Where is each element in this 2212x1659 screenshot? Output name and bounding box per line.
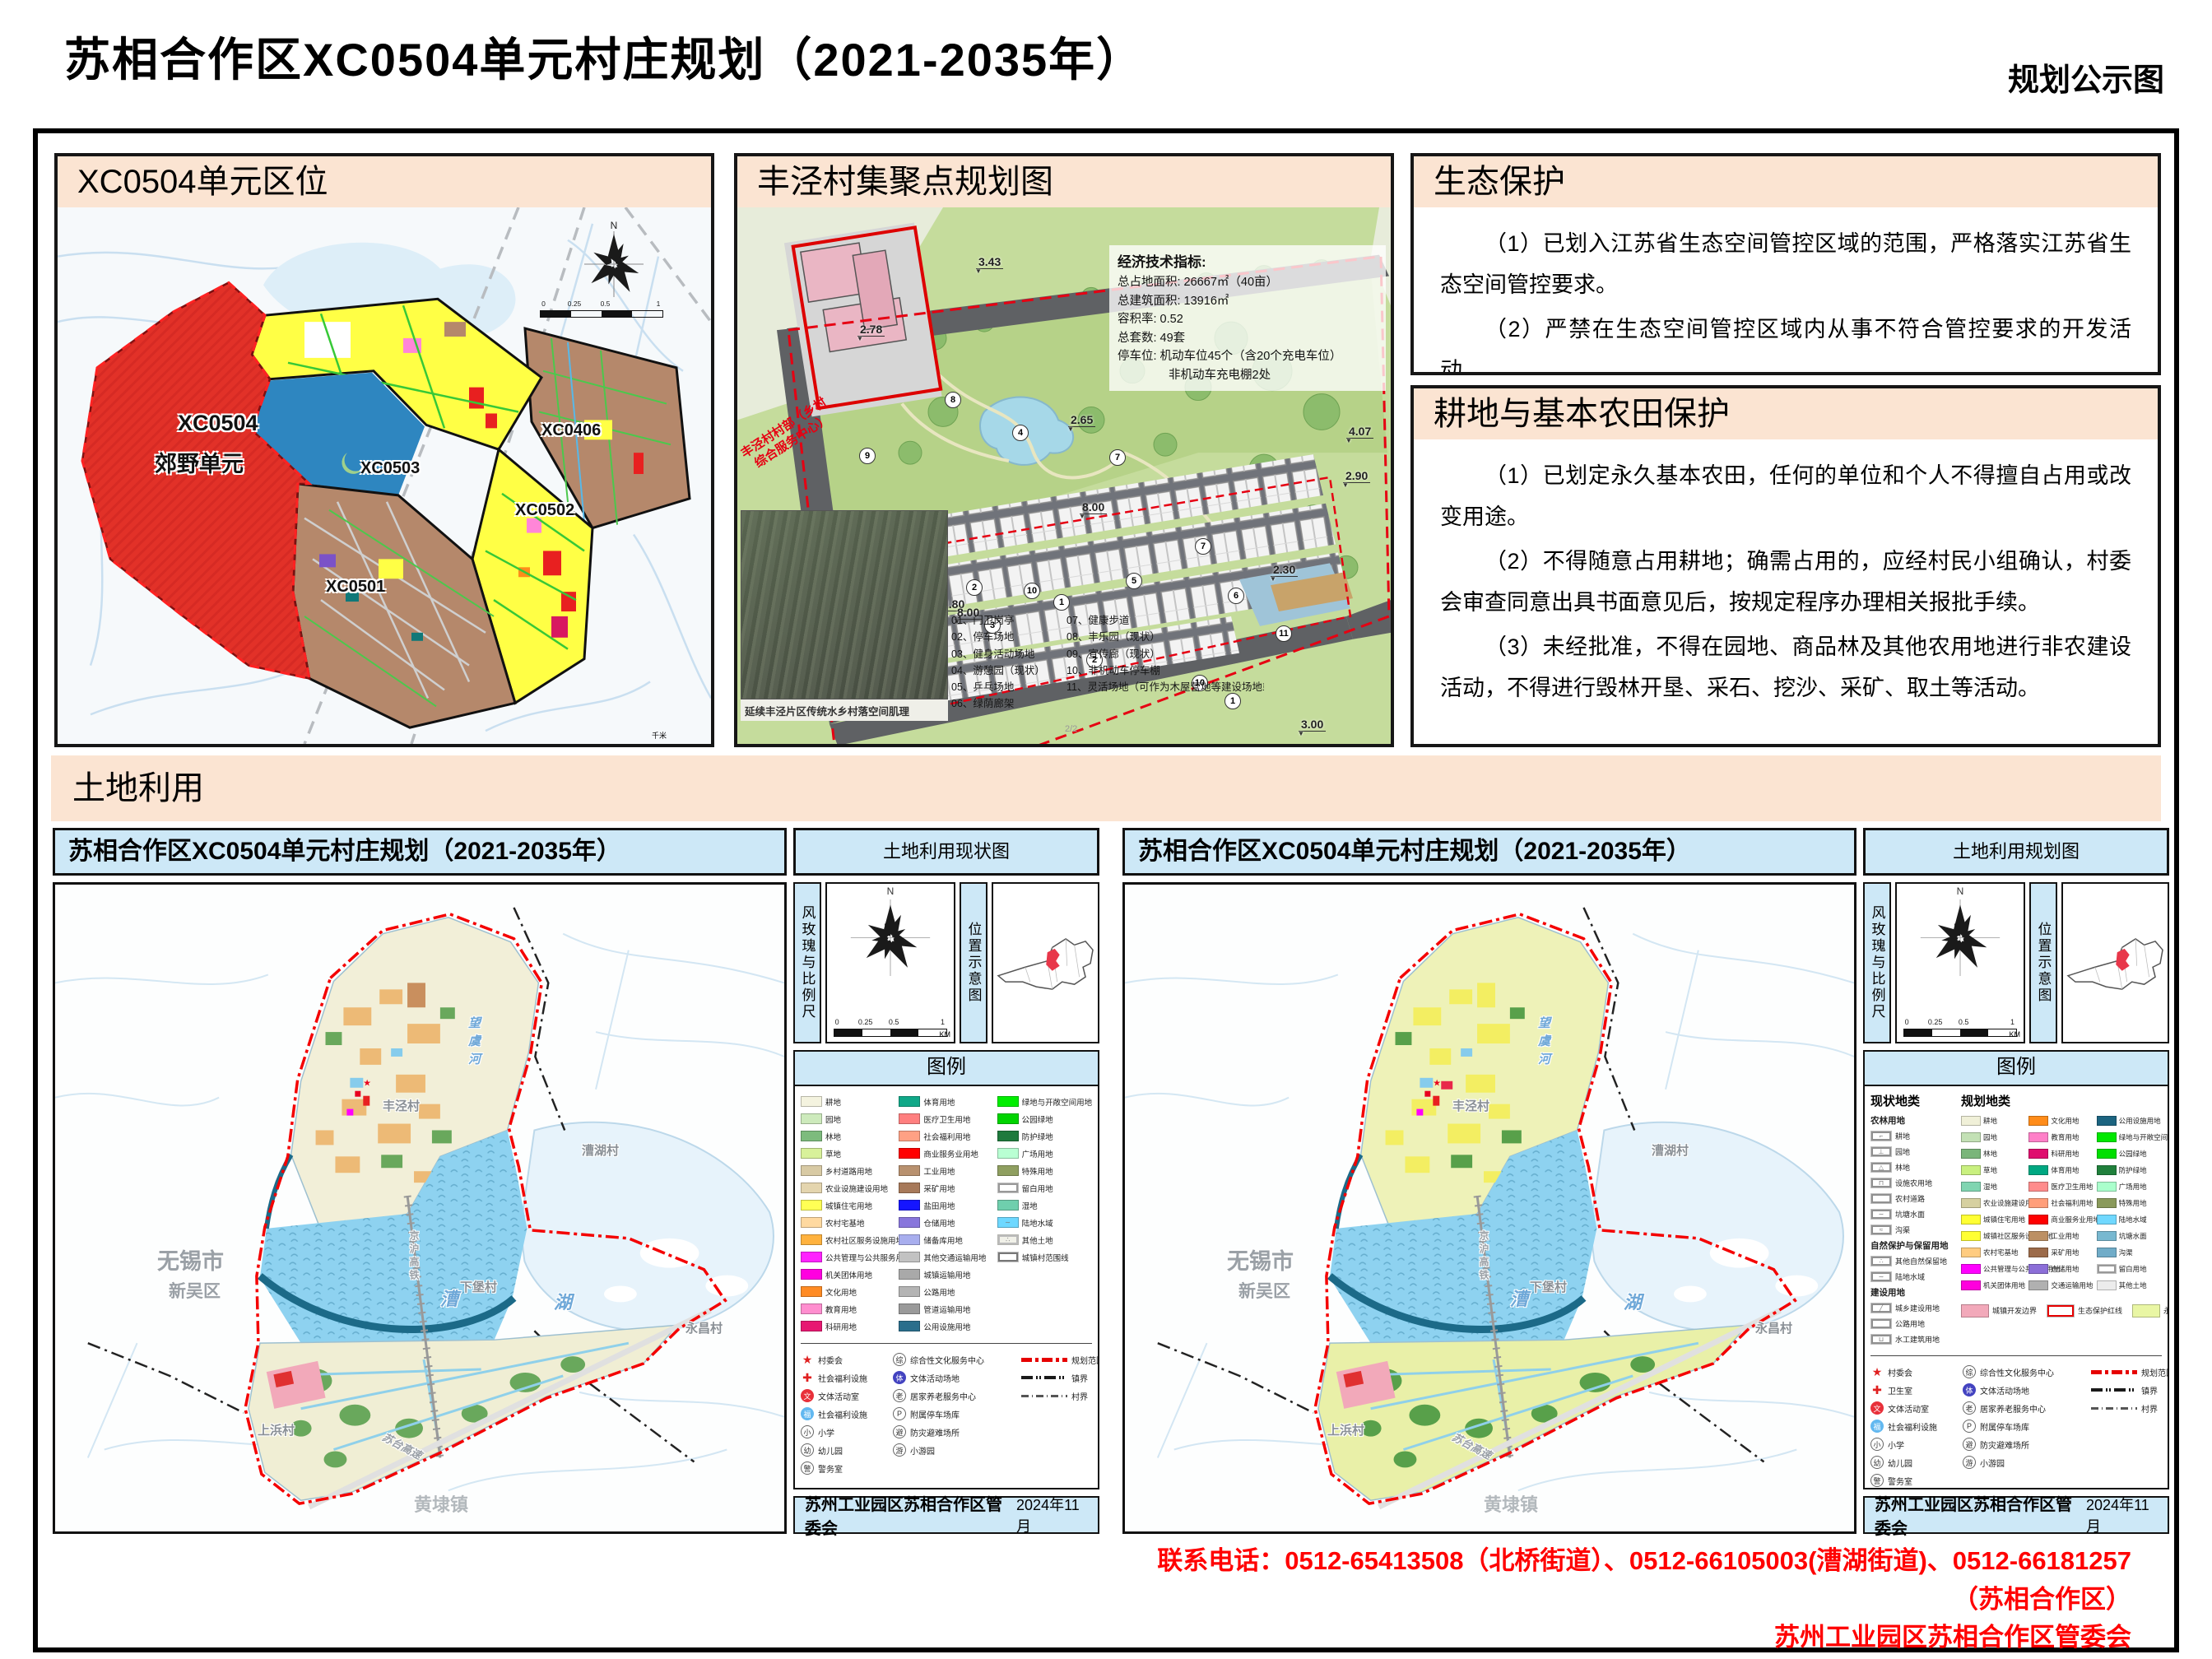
scale-tick: 0 [1905, 1018, 1909, 1026]
legend-box: 图例 耕地园地林地草地乡村道路用地农业设施建设用地城镇住宅用地农村宅基地农村社区… [793, 1050, 1099, 1489]
north-arrow-icon: N [581, 219, 647, 298]
farmland-paragraph: （1）已划定永久基本农田，任何的单位和个人不得擅自占用或改变用途。 [1440, 456, 2131, 538]
legend-item: 科研用地 [801, 1317, 895, 1335]
map-place-label: 黄埭镇 [414, 1490, 468, 1517]
legend-item: 防护绿地 [997, 1127, 1092, 1145]
legend-item: 城镇村范围线 [997, 1248, 1092, 1266]
scale-tick: 0.25 [858, 1018, 873, 1026]
scale-tick: 1 [657, 300, 661, 308]
legend-item: 广场用地 [2097, 1178, 2162, 1195]
legend-item: 城镇开发边界 [1961, 1302, 2037, 1319]
legend-item: 公用设施用地 [899, 1317, 993, 1335]
scale-tick: 0 [541, 300, 546, 308]
facility-number-badge: 1 [1053, 594, 1070, 611]
windrose-icon [827, 895, 954, 984]
special-boundaries: 城镇开发边界生态保护红线永久基本农田 [1961, 1302, 2162, 1319]
symbol-legend-item: 老居家养老服务中心 [893, 1387, 1015, 1405]
legend-item: ╱城乡建设用地 [1870, 1300, 1956, 1316]
map-place-label: 京沪高铁 [1477, 1230, 1491, 1283]
symbol-legend-item: 游小游园 [893, 1441, 1015, 1459]
contact-org: 苏州工业园区苏相合作区管委会 [1108, 1619, 2131, 1657]
map-place-label: 漕湖村 [582, 1141, 619, 1159]
eco-protection-header: 生态保护 [1414, 156, 2158, 207]
scale-tick: 0.25 [1928, 1018, 1943, 1026]
legend-item: 体育用地 [899, 1093, 993, 1110]
symbol-legend-item: 避防灾避难场所 [893, 1423, 1015, 1441]
symbol-legend-item: 综综合性文化服务中心 [893, 1350, 1015, 1369]
planned-col-1: 耕地园地林地草地湿地农业设施建设用地城镇住宅用地城镇社区服务设施用地农村宅基地公… [1961, 1113, 2026, 1294]
legend-item: 防护绿地 [2097, 1162, 2162, 1178]
landuse-section-header: 土地利用 [51, 755, 2161, 821]
legend-item: 管道运输用地 [899, 1300, 993, 1317]
map-place-labels: 丰泾村漕湖村无锡市新吴区下堡村上浜村永昌村黄埭镇漕湖望虞河京沪高铁苏台高速 [55, 885, 784, 1531]
symbol-legend-col2: 综综合性文化服务中心体文体活动场地老居家养老服务中心P附属停车场库避防灾避难场所… [1963, 1363, 2084, 1489]
map-place-label: 永昌村 [1755, 1319, 1792, 1336]
legend-item: 文化用地 [801, 1283, 895, 1300]
map-place-label: 无锡市 [1227, 1243, 1294, 1276]
facility-list: 01、门卫岗亭02、停车场地03、健身活动场地04、游憩园（现状）05、乒乓场地… [951, 612, 1264, 713]
legend-item: 坑塘水面 [2097, 1228, 2162, 1244]
facility-list-item: 11、灵活场地（可作为木屋营地等建设场地或临时停车场地） [1066, 679, 1264, 695]
legend-item: 公园绿地 [2097, 1145, 2162, 1162]
contact-info: 联系电话：0512-65413508（北桥街道）、0512-66105003(漕… [1108, 1542, 2169, 1657]
legend-item: 社会福利用地 [899, 1127, 993, 1145]
facility-list-item: 04、游憩园（现状） [951, 662, 1057, 679]
symbol-legend-item: 警警务室 [801, 1459, 886, 1477]
facility-list-item: 01、门卫岗亭 [951, 612, 1057, 629]
contact-phones: 联系电话：0512-65413508（北桥街道）、0512-66105003(漕… [1108, 1542, 2131, 1619]
facility-number-badge: 6 [1228, 588, 1244, 604]
legend-item: 留白用地 [2097, 1261, 2162, 1277]
planned-types-title: 规划地类 [1961, 1093, 2162, 1113]
windrose-label: 风玫瑰与比例尺 [1863, 882, 1891, 1043]
map-place-label: 下堡村 [460, 1278, 497, 1295]
map-place-labels: 丰泾村漕湖村无锡市新吴区下堡村上浜村永昌村黄埭镇漕湖望虞河京沪高铁苏台高速 [1125, 885, 1854, 1531]
legend-item: 盐田用地 [899, 1197, 993, 1214]
facility-number-badge: 11 [1276, 625, 1292, 642]
farmland-paragraph: （2）不得随意占用耕地；确需占用的，应经村民小组确认，村委会审查同意出具书面意见… [1440, 541, 2131, 624]
page-title: 苏相合作区XC0504单元村庄规划（2021-2035年） [64, 23, 1144, 90]
map-place-label: 苏台高速 [380, 1429, 425, 1462]
legend-item: 陆地水域 [2097, 1211, 2162, 1228]
farmland-paragraph: （3）未经批准，不得在园地、商品林及其他农用地进行非农建设活动，不得进行毁林开垦… [1440, 627, 2131, 709]
windrose-label: 风玫瑰与比例尺 [793, 882, 821, 1043]
legend-item: ⊔水工建筑用地 [1870, 1331, 1956, 1347]
legend-item: 文化用地 [2028, 1113, 2093, 1129]
planned-col-3: 公用设施用地绿地与开敞空间用地公园绿地防护绿地广场用地特殊用地陆地水域坑塘水面沟… [2097, 1113, 2162, 1294]
legend-item: ∴其他自然保留地 [1870, 1253, 1956, 1269]
facility-list-item: 06、绿荫廊架 [951, 695, 1057, 712]
map-place-label: 湖 [1624, 1288, 1642, 1314]
scale-tick: 0.5 [889, 1018, 899, 1026]
unit-location-header: XC0504单元区位 [58, 156, 711, 207]
sheet-title: 苏相合作区XC0504单元村庄规划（2021-2035年） [1122, 828, 1856, 876]
scale-bar: 00.250.51 KM [834, 1018, 947, 1037]
legend-item: ∼陆地水域 [1870, 1269, 1956, 1285]
map-place-label: 新吴区 [169, 1278, 221, 1303]
symbol-legend-item: 体文体活动场地 [893, 1369, 1015, 1387]
facility-list-item: 07、健康步道 [1066, 612, 1264, 629]
map-place-label: 新吴区 [1238, 1278, 1290, 1303]
legend-item: 仓储用地 [2028, 1261, 2093, 1277]
legend-item: 机关团体用地 [801, 1266, 895, 1283]
legend-item: ⌐耕地 [1870, 1128, 1956, 1144]
map-place-label: 漕 [440, 1285, 458, 1311]
eco-paragraph: （2）严禁在生态空间管控区域内从事不符合管控要求的开发活动。 [1440, 309, 2131, 372]
facility-list-item: 10、非机动车停车棚 [1066, 662, 1264, 679]
facility-number-badge: 7 [1109, 449, 1126, 466]
legend-title: 图例 [795, 1052, 1098, 1086]
legend-item: 湿地 [997, 1197, 1092, 1214]
legend-item: 教育用地 [801, 1300, 895, 1317]
scale-tick: 0 [835, 1018, 839, 1026]
legend-item: 留白用地 [997, 1179, 1092, 1197]
legend-item: 沟渠 [2097, 1244, 2162, 1261]
legend-item: 绿地与开敞空间用地 [997, 1093, 1092, 1110]
legend-item: 工业用地 [899, 1162, 993, 1179]
symbol-legend-item: 老居家养老服务中心 [1963, 1399, 2084, 1417]
symbol-legend-item: 福社会福利设施 [1870, 1417, 1956, 1435]
eco-protection-panel: 生态保护 （1）已划入江苏省生态空间管控区域的范围，严格落实江苏省生态空间管控要… [1410, 153, 2161, 375]
legend-item: 林地 [801, 1127, 895, 1145]
legend-item: 采矿用地 [899, 1179, 993, 1197]
legend-item: 农业设施建设用地 [801, 1179, 895, 1197]
legend-item: 绿地与开敞空间用地 [2097, 1129, 2162, 1145]
symbol-legend-item: P附属停车场库 [893, 1405, 1015, 1423]
legend-item: 城镇社区服务设施用地 [1961, 1228, 2026, 1244]
facility-number-badge: 9 [859, 448, 876, 464]
location-minimap [2061, 882, 2169, 1043]
symbol-legend-item: 体文体活动场地 [1963, 1381, 2084, 1399]
legend-item: 其他交通运输用地 [899, 1248, 993, 1266]
legend-item: 农村道路 [1870, 1191, 1956, 1206]
legend-item: 农业设施建设用地 [1961, 1195, 2026, 1211]
facility-number-badge: 5 [1126, 573, 1142, 589]
legend-item: ≈沟渠 [1870, 1222, 1956, 1238]
sheet-footer: 苏州工业园区苏相合作区管委会 2024年11月 [793, 1496, 1099, 1534]
facility-number-badge: 10 [1024, 583, 1040, 599]
legend-item: 湿地 [1961, 1178, 2026, 1195]
legend-item: ∴其他土地 [997, 1231, 1092, 1248]
legend-item: 草地 [1961, 1162, 2026, 1178]
unit-label: 郊野单元 [155, 446, 244, 478]
page-marker: 2/2 [1065, 724, 1077, 734]
unit-label: XC0501 [326, 578, 385, 597]
boundary-legend-item: 镇界 [2091, 1381, 2162, 1399]
symbol-legend-item: 游小游园 [1963, 1453, 2084, 1471]
symbol-legend-item: 幼幼儿园 [801, 1441, 886, 1459]
legend-item: 草地 [801, 1145, 895, 1162]
legend-item: 其他土地 [2097, 1277, 2162, 1294]
boundary-legend-item: 村界 [2091, 1399, 2162, 1417]
legend-item: 交通运输用地 [2028, 1277, 2093, 1294]
map-place-label: 望虞河 [1535, 1016, 1552, 1071]
current-types-title: 现状地类 [1870, 1093, 1956, 1113]
scale-tick: 0.5 [1959, 1018, 1969, 1026]
unit-label: XC0503 [360, 459, 420, 478]
symbol-legend-item: 小小学 [801, 1423, 886, 1441]
legend-item: 永久基本农田 [2132, 1302, 2168, 1319]
legend-item: ∼坑塘水面 [1870, 1206, 1956, 1222]
legend-item: 城镇运输用地 [899, 1266, 993, 1283]
sheet-title: 苏相合作区XC0504单元村庄规划（2021-2035年） [53, 828, 787, 876]
cluster-plan-header: 丰泾村集聚点规划图 [737, 156, 1391, 207]
footer-date: 2024年11月 [1016, 1494, 1088, 1536]
legend-item: 体育用地 [2028, 1162, 2093, 1178]
legend-item: 乡村道路用地 [801, 1162, 895, 1179]
symbol-legend-col1: ★村委会✚社会福利设施文文体活动室福社会福利设施小小学幼幼儿园警警务室 [801, 1350, 886, 1477]
legend-column-3: 绿地与开敞空间用地公园绿地防护绿地广场用地特殊用地留白用地湿地∼陆地水域∴其他土… [997, 1093, 1092, 1335]
legend-item: 建设用地 [1870, 1285, 1956, 1300]
legend-item: 耕地 [1961, 1113, 2026, 1129]
legend-item: 园地 [801, 1110, 895, 1127]
map-place-label: 京沪高铁 [407, 1230, 421, 1283]
legend-item: 商业服务业用地 [2028, 1211, 2093, 1228]
legend-item: 林地 [1961, 1145, 2026, 1162]
legend-item: 农村社区服务设施用地 [801, 1231, 895, 1248]
legend-item: ⊥园地 [1870, 1144, 1956, 1159]
legend-item: 园地 [1961, 1129, 2026, 1145]
scale-unit: KM [2010, 1030, 2021, 1039]
symbol-legend-item: 幼幼儿园 [1870, 1453, 1956, 1471]
sheet-sidebar: 风玫瑰与比例尺 N [793, 882, 1099, 1534]
legend-item: 工业用地 [2028, 1228, 2093, 1244]
legend-item: 农村宅基地 [801, 1214, 895, 1231]
farmland-protection-panel: 耕地与基本农田保护 （1）已划定永久基本农田，任何的单位和个人不得擅自占用或改变… [1410, 385, 2161, 747]
facility-number-badge: 7 [1195, 538, 1211, 555]
unit-label: XC0504 [178, 411, 258, 436]
poster-frame: XC0504单元区位 [33, 128, 2179, 1652]
legend-item: 耕地 [801, 1093, 895, 1110]
landuse-plan-sheet: 苏相合作区XC0504单元村庄规划（2021-2035年） 土地利用规划图 [1122, 828, 2169, 1534]
map-place-label: 漕湖村 [1652, 1141, 1689, 1159]
windrose-cell: N [1895, 882, 2025, 1043]
eco-protection-body: （1）已划入江苏省生态空间管控区域的范围，严格落实江苏省生态空间管控要求。（2）… [1414, 207, 2158, 372]
scale-bar: 00.250.51 KM [1903, 1018, 2017, 1037]
legend-box: 图例 现状地类 农林用地⌐耕地⊥园地△林地⊓设施农用地农村道路∼坑塘水面≈沟渠自… [1863, 1050, 2169, 1489]
legend-item: 农林用地 [1870, 1113, 1956, 1128]
map-place-label: 上浜村 [258, 1421, 295, 1438]
location-map-label: 位置示意图 [2029, 882, 2057, 1043]
aerial-photo [741, 510, 948, 699]
legend-item: 科研用地 [2028, 1145, 2093, 1162]
farmland-protection-header: 耕地与基本农田保护 [1414, 388, 2158, 439]
map-place-label: 丰泾村 [383, 1097, 420, 1114]
legend-item: 城镇住宅用地 [1961, 1211, 2026, 1228]
map-place-label: 漕 [1510, 1285, 1528, 1311]
cluster-plan-panel: 丰泾村集聚点规划图 [734, 153, 1394, 747]
farmland-protection-body: （1）已划定永久基本农田，任何的单位和个人不得擅自占用或改变用途。（2）不得随意… [1414, 439, 2158, 744]
legend-item: 自然保护与保留用地 [1870, 1238, 1956, 1253]
scale-tick: 0.25 [568, 300, 582, 308]
boundary-legend-col: 规划范围镇界村界 [1021, 1350, 1092, 1477]
symbol-legend-item: ★村委会 [1870, 1363, 1956, 1381]
legend-item: 特殊用地 [997, 1162, 1092, 1179]
landuse-current-sheet: 苏相合作区XC0504单元村庄规划（2021-2035年） 土地利用现状图 [53, 828, 1099, 1534]
map-place-label: 永昌村 [685, 1319, 723, 1336]
legend-column-1: 耕地园地林地草地乡村道路用地农业设施建设用地城镇住宅用地农村宅基地农村社区服务设… [801, 1093, 895, 1335]
legend-item: 社会福利用地 [2028, 1195, 2093, 1211]
scale-unit: KM [940, 1030, 951, 1039]
landuse-plan-map: ★ 丰泾村漕湖村无锡市新吴区下堡村上浜村永昌村黄埭镇漕湖望虞河京沪高铁苏台高速 [1122, 882, 1856, 1534]
boundary-legend-item: 镇界 [1021, 1369, 1092, 1387]
current-types-list: 农林用地⌐耕地⊥园地△林地⊓设施农用地农村道路∼坑塘水面≈沟渠自然保护与保留用地… [1870, 1113, 1956, 1347]
planning-notice-poster: 苏相合作区XC0504单元村庄规划（2021-2035年） 规划公示图 XC05… [0, 0, 2212, 1659]
symbol-legend-item: 文文体活动室 [801, 1387, 886, 1405]
legend-item: 生态保护红线 [2047, 1302, 2122, 1319]
symbol-legend-item: ★村委会 [801, 1350, 886, 1369]
cluster-plan-map: 丰泾村村部（乡村综合服务中心） 经济技术指标: 总占地面积: 26667㎡（40… [737, 207, 1391, 744]
scale-bar: 00.250.51 千米 [540, 300, 663, 739]
scale-tick: 1 [2010, 1018, 2014, 1026]
map-place-label: 下堡村 [1530, 1278, 1567, 1295]
svg-text:N: N [611, 220, 618, 231]
boundary-legend-item: 村界 [1021, 1387, 1092, 1405]
facility-number-badge: 2 [966, 579, 983, 596]
legend-item: 医疗卫生用地 [899, 1110, 993, 1127]
sheet-map-type: 土地利用现状图 [793, 828, 1099, 876]
symbol-legend-col2: 综综合性文化服务中心体文体活动场地老居家养老服务中心P附属停车场库避防灾避难场所… [893, 1350, 1015, 1477]
legend-item: 商业服务业用地 [899, 1145, 993, 1162]
legend-item: 公路用地 [1870, 1316, 1956, 1331]
boundary-legend-item: 规划范围 [2091, 1363, 2162, 1381]
legend-item: 城镇住宅用地 [801, 1197, 895, 1214]
page-subtitle: 规划公示图 [2008, 54, 2164, 100]
legend-item: △林地 [1870, 1159, 1956, 1175]
legend-item: 特殊用地 [2097, 1195, 2162, 1211]
map-place-label: 丰泾村 [1452, 1097, 1489, 1114]
symbol-legend-item: ✚卫生室 [1870, 1381, 1956, 1399]
planned-col-2: 文化用地教育用地科研用地体育用地医疗卫生用地社会福利用地商业服务业用地工业用地采… [2028, 1113, 2093, 1294]
symbol-legend-item: 综综合性文化服务中心 [1963, 1363, 2084, 1381]
legend-item: 医疗卫生用地 [2028, 1178, 2093, 1195]
symbol-legend-item: 小小学 [1870, 1435, 1956, 1453]
symbol-legend-item: P附属停车场库 [1963, 1417, 2084, 1435]
legend-item: 农村宅基地 [1961, 1244, 2026, 1261]
legend-item: 公共管理与公共服务用地 [801, 1248, 895, 1266]
footer-org: 苏州工业园区苏相合作区管委会 [805, 1491, 1016, 1539]
symbol-legend-col1: ★村委会✚卫生室文文体活动室福社会福利设施小小学幼幼儿园警警务室 [1870, 1363, 1956, 1489]
sheet-sidebar: 风玫瑰与比例尺 N [1863, 882, 2169, 1534]
location-minimap [992, 882, 1099, 1043]
legend-item: 公路用地 [899, 1283, 993, 1300]
scale-unit: 千米 [652, 730, 667, 741]
boundary-legend-col: 规划范围镇界村界 [2091, 1363, 2162, 1489]
symbol-legend-item: 文文体活动室 [1870, 1399, 1956, 1417]
legend-item: ∼陆地水域 [997, 1214, 1092, 1231]
map-place-label: 黄埭镇 [1484, 1490, 1538, 1517]
map-place-label: 苏台高速 [1450, 1429, 1495, 1462]
legend-item: 公用设施用地 [2097, 1113, 2162, 1129]
location-map-label: 位置示意图 [960, 882, 987, 1043]
windrose-icon [1897, 895, 2024, 984]
facility-number-badge: 8 [945, 392, 961, 408]
sheet-footer: 苏州工业园区苏相合作区管委会 2024年11月 [1863, 1496, 2169, 1534]
unit-location-panel: XC0504单元区位 [54, 153, 714, 747]
legend-title: 图例 [1865, 1052, 2168, 1086]
legend-column-2: 体育用地医疗卫生用地社会福利用地商业服务业用地工业用地采矿用地盐田用地仓储用地储… [899, 1093, 993, 1335]
legend-item: 广场用地 [997, 1145, 1092, 1162]
eco-paragraph: （1）已划入江苏省生态空间管控区域的范围，严格落实江苏省生态空间管控要求。 [1440, 224, 2131, 306]
windrose-cell: N [825, 882, 955, 1043]
facility-list-item: 02、停车场地 [951, 629, 1057, 645]
legend-item: 储备库用地 [899, 1231, 993, 1248]
legend-item: 采矿用地 [2028, 1244, 2093, 1261]
symbol-legend-item: 避防灾避难场所 [1963, 1435, 2084, 1453]
legend-item: ⊓设施农用地 [1870, 1175, 1956, 1191]
map-place-label: 望虞河 [465, 1016, 482, 1071]
aerial-photo-caption: 延续丰泾片区传统水乡村落空间肌理 [741, 699, 948, 721]
map-place-label: 上浜村 [1327, 1421, 1364, 1438]
legend-item: 教育用地 [2028, 1129, 2093, 1145]
map-place-label: 无锡市 [157, 1243, 224, 1276]
landuse-current-map: ★ 丰泾村漕湖村无锡市新吴区下堡村上浜村永昌村黄埭镇漕湖望虞河京沪高铁苏台高速 [53, 882, 787, 1534]
sheet-map-type: 土地利用规划图 [1863, 828, 2169, 876]
legend-item: 机关团体用地 [1961, 1277, 2026, 1294]
facility-list-item: 05、乒乓场地 [951, 679, 1057, 695]
facility-list-item: 03、健身活动场地 [951, 646, 1057, 662]
scale-tick: 1 [941, 1018, 945, 1026]
facility-list-item: 09、宣传廊（现状） [1066, 646, 1264, 662]
symbol-legend-item: 福社会福利设施 [801, 1405, 886, 1423]
footer-date: 2024年11月 [2086, 1494, 2158, 1536]
legend-item: 公园绿地 [997, 1110, 1092, 1127]
legend-item: 仓储用地 [899, 1214, 993, 1231]
symbol-legend-item: ✚社会福利设施 [801, 1369, 886, 1387]
symbol-legend-item: 警警务室 [1870, 1471, 1956, 1489]
boundary-legend-item: 规划范围 [1021, 1350, 1092, 1369]
map-place-label: 湖 [554, 1288, 572, 1314]
scale-tick: 0.5 [601, 300, 611, 308]
footer-org: 苏州工业园区苏相合作区管委会 [1875, 1491, 2086, 1539]
legend-item: 公共管理与公共服务用地 [1961, 1261, 2026, 1277]
facility-list-item: 08、丰乐园（现状） [1066, 629, 1264, 645]
unit-location-map: XC0503XC0504郊野单元XC0406XC0502XC0501 N 00.… [58, 207, 711, 744]
facility-number-badge: 4 [1012, 425, 1029, 441]
